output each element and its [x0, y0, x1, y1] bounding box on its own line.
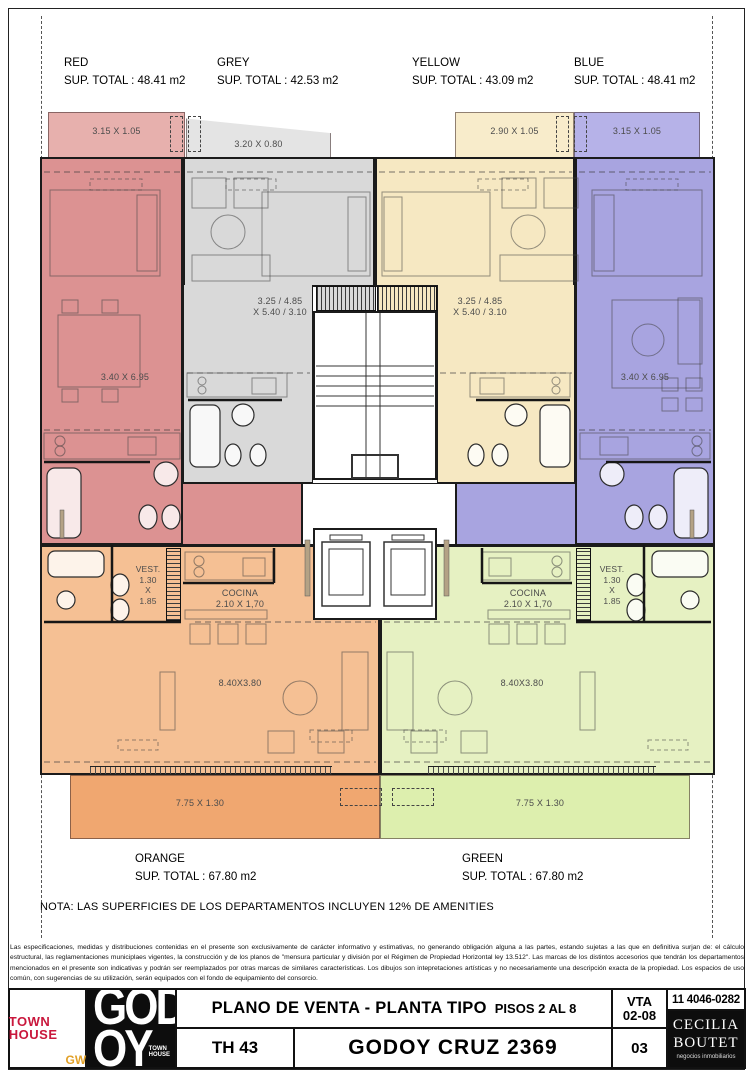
green-living-dim: 8.40X3.80 — [472, 678, 572, 689]
red-unit-hall — [183, 483, 302, 545]
legend-blue-name: BLUE — [574, 55, 695, 73]
blue-unit-hall — [456, 483, 575, 545]
planter — [392, 788, 434, 806]
vest-l1: VEST. — [128, 564, 168, 575]
godoy-small2: HOUSE — [149, 1052, 170, 1059]
legend-blue: BLUE SUP. TOTAL : 48.41 m2 — [574, 55, 695, 91]
legend-yellow-sup: SUP. TOTAL : 43.09 m2 — [412, 73, 533, 91]
green-terrace-dim: 7.75 X 1.30 — [460, 798, 620, 809]
legend-orange-name: ORANGE — [135, 851, 256, 869]
agent-phone: 11 4046-0282 — [668, 990, 744, 1011]
logo-house-text: HOUSE — [9, 1029, 58, 1041]
agent-box: CECILIA BOUTET negocios inmobiliarios — [668, 1011, 744, 1067]
legend-red: RED SUP. TOTAL : 48.41 m2 — [64, 55, 185, 91]
floor-plan-sheet: RED SUP. TOTAL : 48.41 m2 GREY SUP. TOTA… — [0, 0, 754, 1079]
vta-range: 02-08 — [623, 1009, 656, 1023]
legend-green: GREEN SUP. TOTAL : 67.80 m2 — [462, 851, 583, 887]
disclaimer-text: Las especificaciones, medidas y distribu… — [10, 943, 744, 985]
green-cocina-label: COCINA 2.10 X 1,70 — [478, 588, 578, 611]
legend-red-sup: SUP. TOTAL : 48.41 m2 — [64, 73, 185, 91]
nota-text: NOTA: LAS SUPERFICIES DE LOS DEPARTAMENT… — [40, 901, 494, 913]
agent-last-name: BOUTET — [673, 1035, 738, 1052]
red-balcony: 3.15 X 1.05 — [48, 112, 185, 158]
planter — [574, 116, 587, 152]
orange-living-dim: 8.40X3.80 — [190, 678, 290, 689]
legend-green-sup: SUP. TOTAL : 67.80 m2 — [462, 869, 583, 887]
cocina-l2: 2.10 X 1,70 — [190, 599, 290, 610]
stairwell — [313, 311, 437, 480]
vest-l2: 1.30 — [128, 575, 168, 586]
legend-yellow-name: YELLOW — [412, 55, 533, 73]
orange-railing — [90, 766, 332, 775]
grey-balcony-dim: 3.20 X 0.80 — [187, 139, 330, 150]
orange-vest-closet — [166, 548, 181, 621]
yellow-room-dim-l1: 3.25 / 4.85 — [425, 296, 535, 307]
orange-vest-label: VEST. 1.30 X 1.85 — [128, 564, 168, 607]
red-room-dim: 3.40 X 6.95 — [70, 372, 180, 383]
grey-room-dim-l1: 3.25 / 4.85 — [225, 296, 335, 307]
green-vest-label: VEST. 1.30 X 1.85 — [592, 564, 632, 607]
grey-unit-upper — [183, 157, 375, 287]
yellow-room-dim: 3.25 / 4.85 X 5.40 / 3.10 — [425, 296, 535, 319]
sheet-title-sub: PISOS 2 AL 8 — [495, 1001, 577, 1016]
blue-room-dim: 3.40 X 6.95 — [590, 372, 700, 383]
legend-orange: ORANGE SUP. TOTAL : 67.80 m2 — [135, 851, 256, 887]
vest-l3: X — [128, 585, 168, 596]
red-unit — [40, 157, 183, 545]
legend-red-name: RED — [64, 55, 185, 73]
blue-balcony-dim: 3.15 X 1.05 — [575, 126, 699, 137]
legend-grey-name: GREY — [217, 55, 338, 73]
godoy-logo: GOD OY TOWN HOUSE — [87, 990, 177, 1067]
godoy-small1: TOWN — [149, 1046, 170, 1053]
townhouse-logo: TOWN HOUSE GW — [10, 990, 87, 1067]
cocina-l1: COCINA — [478, 588, 578, 599]
legend-blue-sup: SUP. TOTAL : 48.41 m2 — [574, 73, 695, 91]
grey-room-dim-l2: X 5.40 / 3.10 — [225, 307, 335, 318]
green-railing — [428, 766, 656, 775]
planter — [188, 116, 201, 152]
agent-cell: 11 4046-0282 CECILIA BOUTET negocios inm… — [668, 990, 744, 1067]
blue-balcony: 3.15 X 1.05 — [574, 112, 700, 158]
elevator-core — [313, 528, 437, 620]
planter — [556, 116, 569, 152]
planter — [340, 788, 382, 806]
project-address: GODOY CRUZ 2369 — [295, 1029, 611, 1067]
grey-room-dim: 3.25 / 4.85 X 5.40 / 3.10 — [225, 296, 335, 319]
vest-l1: VEST. — [592, 564, 632, 575]
sheet-title: PLANO DE VENTA - PLANTA TIPO — [212, 999, 487, 1018]
legend-orange-sup: SUP. TOTAL : 67.80 m2 — [135, 869, 256, 887]
blue-unit — [575, 157, 715, 545]
legend-grey: GREY SUP. TOTAL : 42.53 m2 — [217, 55, 338, 91]
logo-gw-text: GW — [66, 1053, 87, 1067]
yellow-room-dim-l2: X 5.40 / 3.10 — [425, 307, 535, 318]
orange-cocina-label: COCINA 2.10 X 1,70 — [190, 588, 290, 611]
cocina-l2: 2.10 X 1,70 — [478, 599, 578, 610]
vta-label: VTA — [627, 995, 652, 1009]
agent-first-name: CECILIA — [673, 1017, 739, 1034]
legend-green-name: GREEN — [462, 851, 583, 869]
orange-terrace-dim: 7.75 X 1.30 — [120, 798, 280, 809]
cocina-l1: COCINA — [190, 588, 290, 599]
vest-l4: 1.85 — [128, 596, 168, 607]
sheet-number: 03 — [613, 1029, 666, 1067]
vest-l4: 1.85 — [592, 596, 632, 607]
legend-grey-sup: SUP. TOTAL : 42.53 m2 — [217, 73, 338, 91]
title-cell: PLANO DE VENTA - PLANTA TIPO PISOS 2 AL … — [177, 990, 613, 1067]
red-balcony-dim: 3.15 X 1.05 — [49, 126, 184, 137]
planter — [170, 116, 183, 152]
title-block: TOWN HOUSE GW GOD OY TOWN HOUSE PLANO DE… — [8, 988, 746, 1069]
vest-l2: 1.30 — [592, 575, 632, 586]
vta-cell: VTA 02-08 03 — [613, 990, 668, 1067]
yellow-unit-upper — [375, 157, 575, 287]
project-code: TH 43 — [177, 1029, 295, 1067]
legend-yellow: YELLOW SUP. TOTAL : 43.09 m2 — [412, 55, 533, 91]
green-vest-closet — [576, 548, 591, 621]
godoy-townhouse-small: TOWN HOUSE — [149, 1046, 170, 1059]
agent-tagline: negocios inmobiliarios — [676, 1054, 735, 1061]
vest-l3: X — [592, 585, 632, 596]
